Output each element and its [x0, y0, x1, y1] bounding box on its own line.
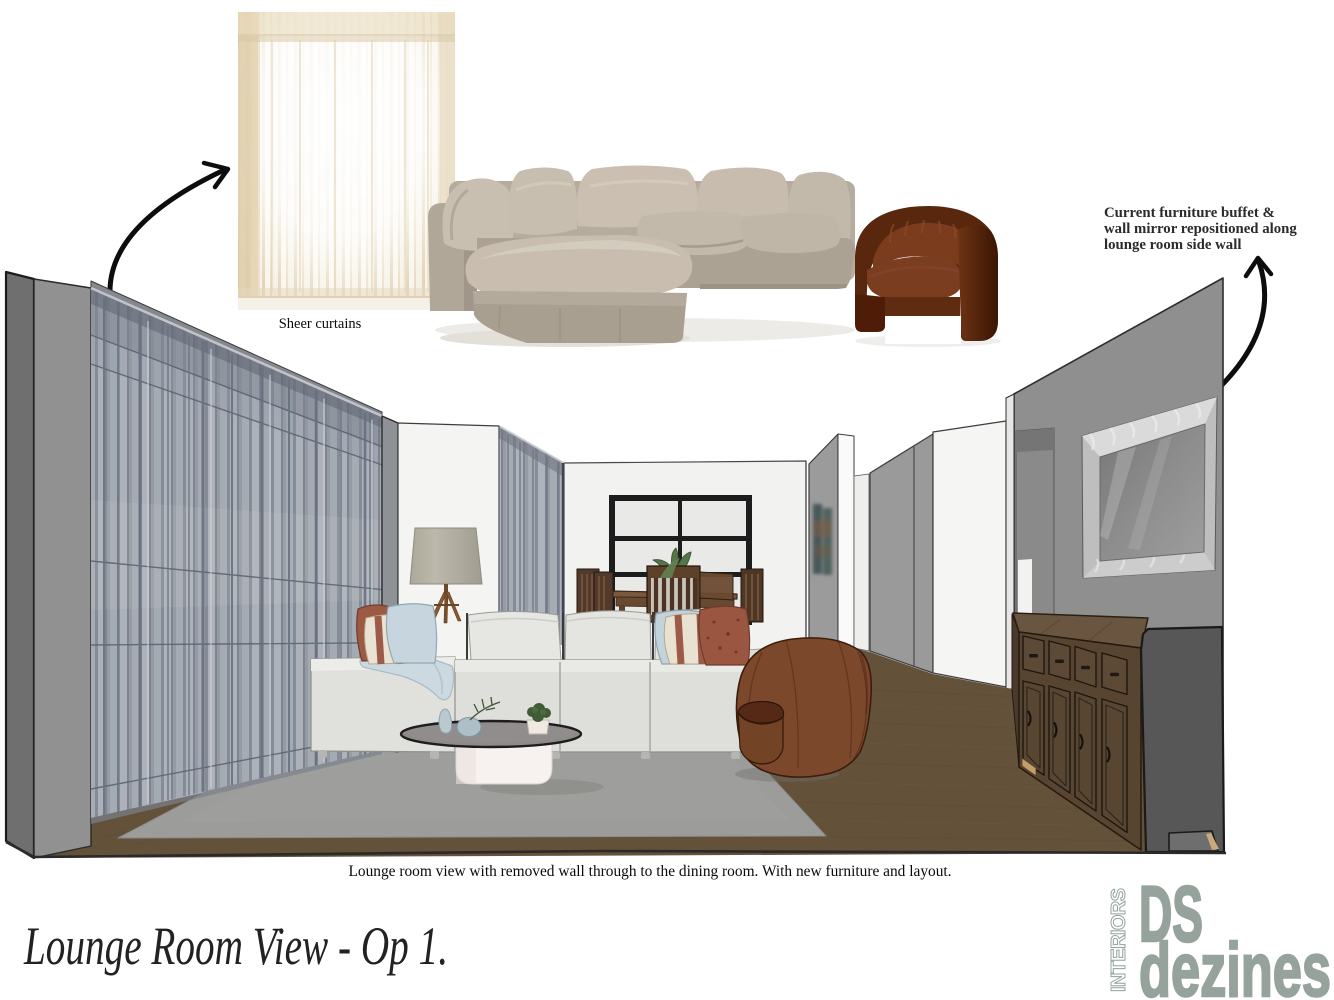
- svg-text:Lounge Room View - Op 1.: Lounge Room View - Op 1.: [23, 916, 448, 976]
- svg-text:Sheer curtains: Sheer curtains: [279, 316, 362, 332]
- svg-text:dezines: dezines: [1139, 928, 1331, 1000]
- svg-text:INTERIORS: INTERIORS: [1108, 888, 1130, 992]
